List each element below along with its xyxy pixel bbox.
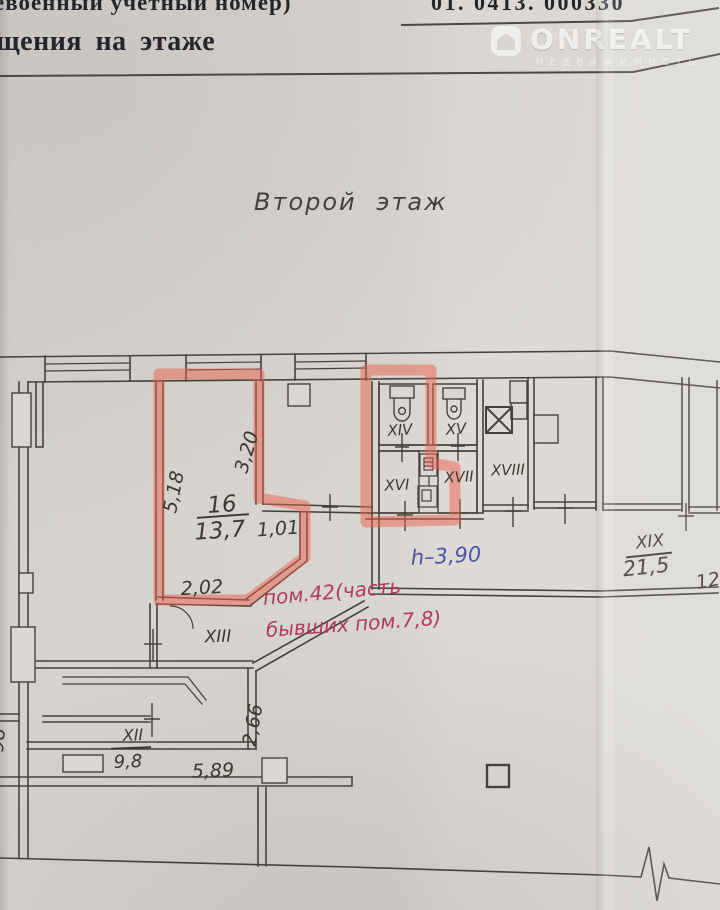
house-icon	[490, 25, 522, 57]
height-annotation: h–3,90	[410, 542, 482, 570]
room-area-xii: 9,8	[113, 751, 142, 773]
document-subheader-fragment: щения на этаже	[0, 26, 215, 58]
room-label-xviii: XVIII	[491, 460, 525, 479]
floor-title: Второй этаж	[254, 188, 448, 216]
room-label-xiv: XIV	[387, 420, 413, 440]
room-label-xv: XV	[445, 419, 467, 438]
room-label-xvi: XVI	[384, 475, 410, 494]
dimension-label: 1,01	[256, 517, 300, 542]
paper-edge-shadow	[0, 0, 10, 910]
toilet-icon	[390, 386, 414, 421]
paper-fold-highlight	[610, 0, 720, 910]
room-label-xiii: XIII	[204, 627, 231, 648]
shaft-icon	[486, 407, 512, 433]
toilet-icon	[443, 388, 465, 419]
column-symbol	[487, 765, 509, 787]
room-area: 13,7	[194, 516, 247, 546]
dimension-label: 2,02	[180, 576, 223, 600]
scanned-floor-plan-page: евоенный учетный номер) 01. 0413. 000330…	[0, 0, 720, 910]
dimension-label: 5,89	[191, 759, 234, 782]
document-header-fragment: евоенный учетный номер)	[0, 0, 291, 16]
door-arc	[170, 606, 193, 629]
room-label-xvii: XVII	[444, 467, 474, 487]
room-label-xii: XII	[122, 725, 143, 745]
